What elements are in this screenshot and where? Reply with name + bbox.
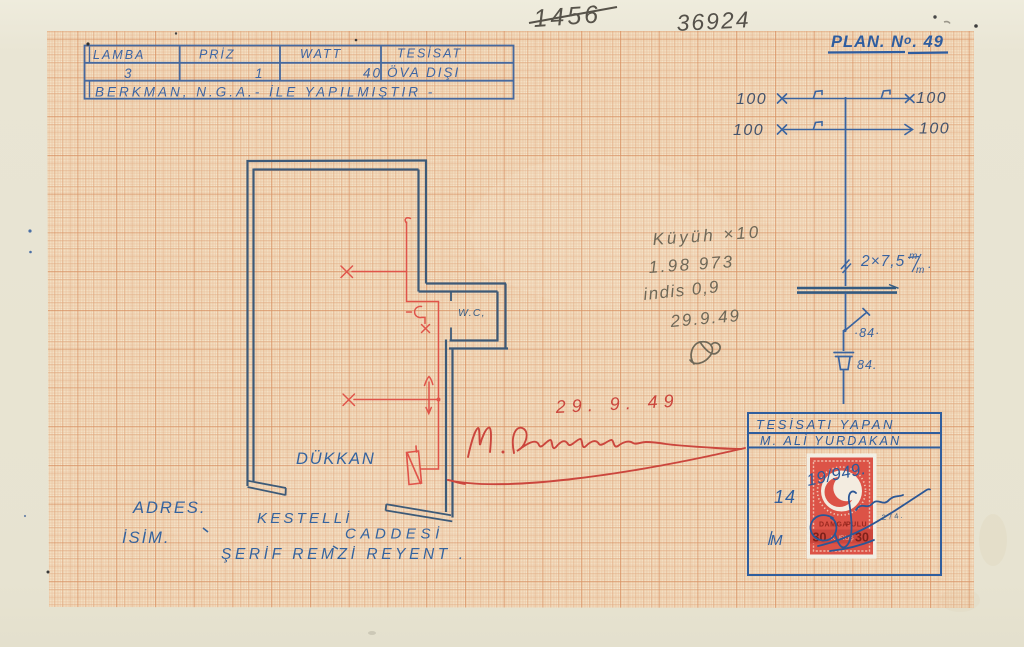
svg-text:M: M [770, 532, 783, 549]
svg-text:ÖVA DIŞI: ÖVA DIŞI [387, 65, 460, 80]
svg-text:LAMBA: LAMBA [93, 48, 145, 62]
svg-text:100: 100 [919, 121, 950, 138]
svg-text:PLAN. No. 49: PLAN. No. 49 [831, 33, 944, 51]
svg-text:ŞERİF REMZİ REYENT .: ŞERİF REMZİ REYENT . [221, 546, 467, 563]
svg-text:CADDESİ: CADDESİ [345, 526, 444, 543]
svg-text:·84·: ·84· [854, 326, 880, 340]
svg-text:DÜKKAN: DÜKKAN [296, 450, 376, 468]
svg-text:3: 3 [124, 66, 134, 81]
svg-text:M. ALİ YURDAKAN: M. ALİ YURDAKAN [760, 434, 901, 448]
svg-text:84.: 84. [857, 358, 877, 372]
svg-text:BERKMAN, N.G.A.- İLE YAPILMIŞT: BERKMAN, N.G.A.- İLE YAPILMIŞTIR - [95, 85, 435, 100]
svg-text:2×7,5: 2×7,5 [860, 253, 905, 270]
svg-text:W.C,: W.C, [458, 307, 486, 319]
svg-text:DAMGA: DAMGA [819, 522, 848, 529]
svg-text:.: . [928, 256, 932, 271]
svg-text:PRİZ: PRİZ [199, 48, 235, 62]
svg-text:TESİSATI YAPAN: TESİSATI YAPAN [756, 417, 895, 432]
svg-text:14: 14 [774, 487, 796, 507]
svg-text:WATT: WATT [300, 47, 342, 61]
svg-text:PULU: PULU [846, 522, 867, 529]
svg-text:100: 100 [736, 91, 767, 108]
svg-text:1: 1 [255, 66, 265, 81]
svg-text:100: 100 [916, 90, 947, 107]
svg-text:m: m [916, 265, 924, 276]
svg-text:36924: 36924 [676, 6, 751, 36]
svg-text:100: 100 [733, 122, 764, 139]
svg-text:40: 40 [363, 66, 382, 81]
svg-text:TESİSAT: TESİSAT [397, 47, 462, 61]
svg-text:ADRES.: ADRES. [132, 499, 206, 517]
svg-text:İSİM.: İSİM. [122, 528, 171, 547]
svg-text:KESTELLİ: KESTELLİ [257, 510, 353, 527]
